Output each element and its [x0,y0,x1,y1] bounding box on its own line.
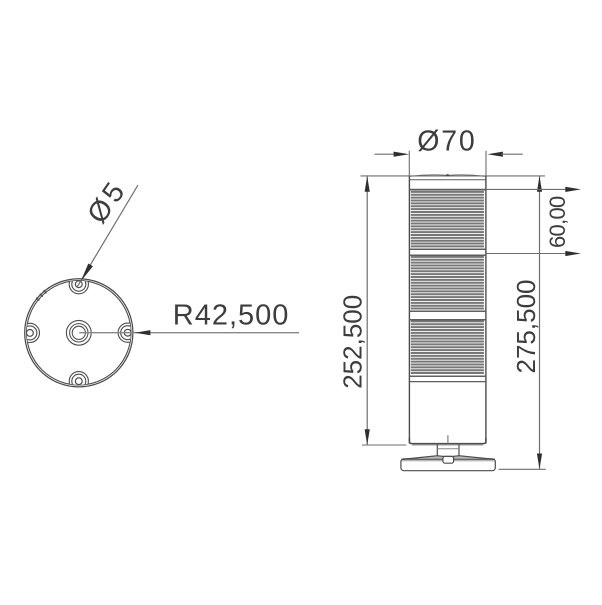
svg-text:R42,500: R42,500 [173,300,290,332]
svg-text:252,500: 252,500 [338,295,368,389]
svg-text:Ø70: Ø70 [417,126,476,158]
svg-text:275,500: 275,500 [511,280,541,374]
svg-text:60,00: 60,00 [545,196,570,248]
